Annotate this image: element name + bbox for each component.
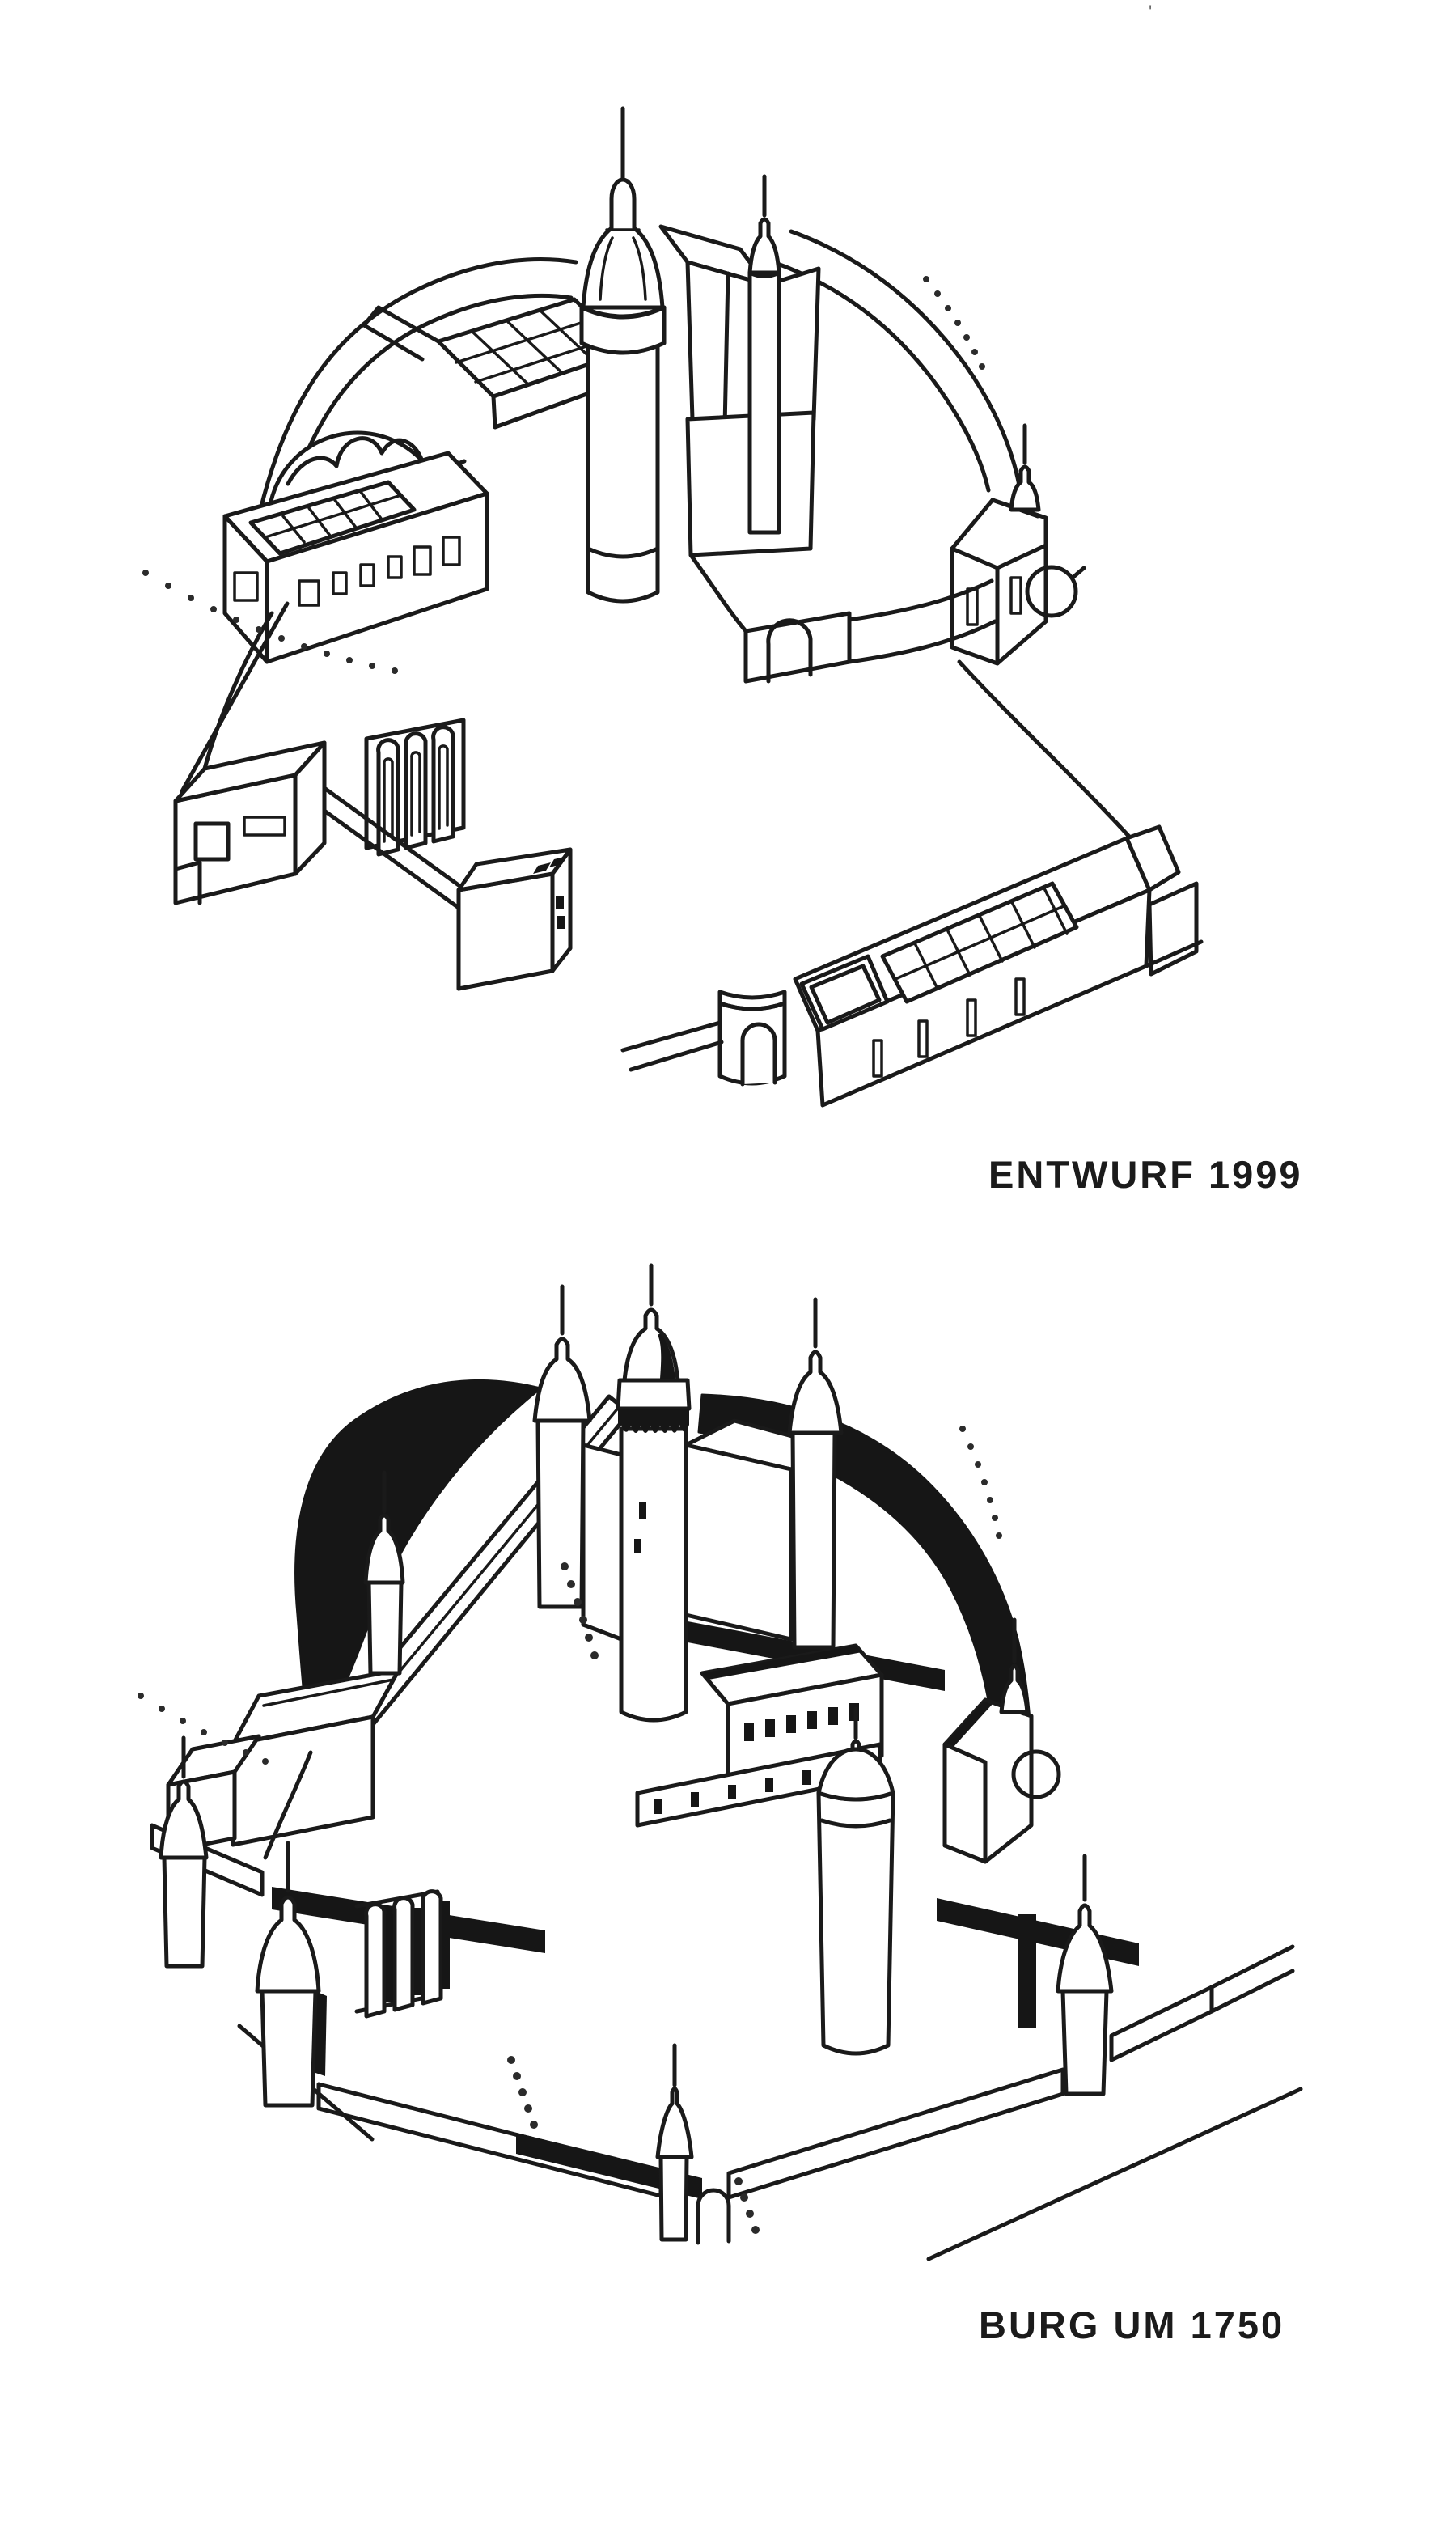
- central-tower: [582, 108, 664, 601]
- wall-shadow-band-right: [937, 1898, 1139, 1966]
- dotted-path-right: [959, 1426, 1002, 1539]
- tall-turret-left: [535, 1286, 590, 1607]
- pilaster-wall: [357, 1892, 450, 2016]
- turret-bottom-right: [1058, 1856, 1111, 2094]
- figure-entwurf-1999: [121, 95, 1221, 1131]
- figure-caption-burg: BURG UM 1750: [979, 2303, 1285, 2347]
- cube-building: [459, 850, 570, 989]
- turret-bottom-left: [257, 1843, 327, 2105]
- figure-caption-entwurf: ENTWURF 1999: [988, 1152, 1303, 1197]
- side-tower: [750, 176, 779, 532]
- pilaster-wall: [366, 720, 463, 854]
- gate-turret: [658, 2045, 729, 2243]
- inner-wall-with-arch: [691, 555, 995, 681]
- scan-speck: ': [1149, 2, 1152, 23]
- figure-burg-um-1750: [136, 1259, 1309, 2262]
- right-gable-building: [952, 426, 1084, 663]
- grid-roof-building-left: [225, 453, 487, 662]
- entwurf-1999-drawing: [121, 95, 1221, 1131]
- cylinder-turret: [623, 992, 785, 1084]
- scanned-page: { "page": { "background_color": "#ffffff…: [0, 0, 1456, 2547]
- bergfried: [618, 1265, 689, 1720]
- burg-um-1750-drawing: [136, 1259, 1309, 2262]
- turret-right-mid: [789, 1299, 841, 1647]
- grid-roof-building-lower: [795, 827, 1201, 1105]
- keep-block: [661, 227, 819, 555]
